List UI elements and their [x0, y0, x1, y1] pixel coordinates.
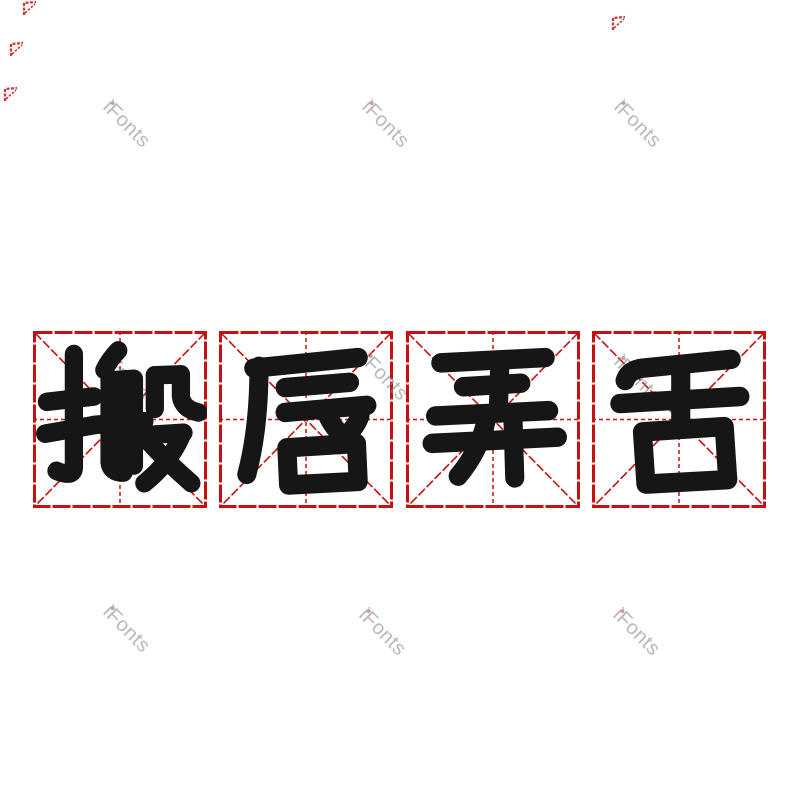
mizige-cell-1: 搬 — [33, 331, 207, 508]
mizige-cell-4: 舌 — [592, 331, 766, 508]
ifonts-watermark: iFonts — [607, 604, 665, 662]
watermark-text: iFonts — [98, 96, 154, 152]
mizige-cell-2: 唇 — [219, 331, 393, 508]
watermark-text: iFonts — [357, 96, 413, 152]
watermark-text: iFonts — [609, 96, 665, 152]
mizige-cell-3: 弄 — [406, 331, 580, 508]
watermark-i-dot — [109, 100, 115, 106]
watermark-i-dot — [368, 100, 374, 106]
glyph-nong — [406, 331, 580, 508]
red-edge-fragment — [9, 41, 25, 57]
glyph-chun — [219, 331, 393, 508]
red-edge-fragment — [3, 86, 19, 102]
red-edge-fragment — [611, 15, 627, 31]
watermark-i-dot — [620, 100, 626, 106]
watermark-text: iFonts — [354, 604, 410, 660]
watermark-i-dot — [619, 608, 625, 614]
glyph-ban — [33, 331, 207, 508]
ifonts-watermark: iFonts — [356, 96, 414, 154]
red-edge-fragment — [22, 0, 38, 16]
ifonts-watermark: iFonts — [97, 601, 155, 659]
canvas: iFonts iFonts iFonts iFonts iFonts iFont… — [0, 0, 800, 800]
ifonts-watermark: iFonts — [608, 96, 666, 154]
watermark-i-dot — [365, 608, 371, 614]
watermark-text: iFonts — [98, 601, 154, 657]
watermark-i-dot — [109, 605, 115, 611]
ifonts-watermark: iFonts — [353, 604, 411, 662]
ifonts-watermark: iFonts — [97, 96, 155, 154]
watermark-text: iFonts — [608, 604, 664, 660]
glyph-she — [592, 331, 766, 508]
